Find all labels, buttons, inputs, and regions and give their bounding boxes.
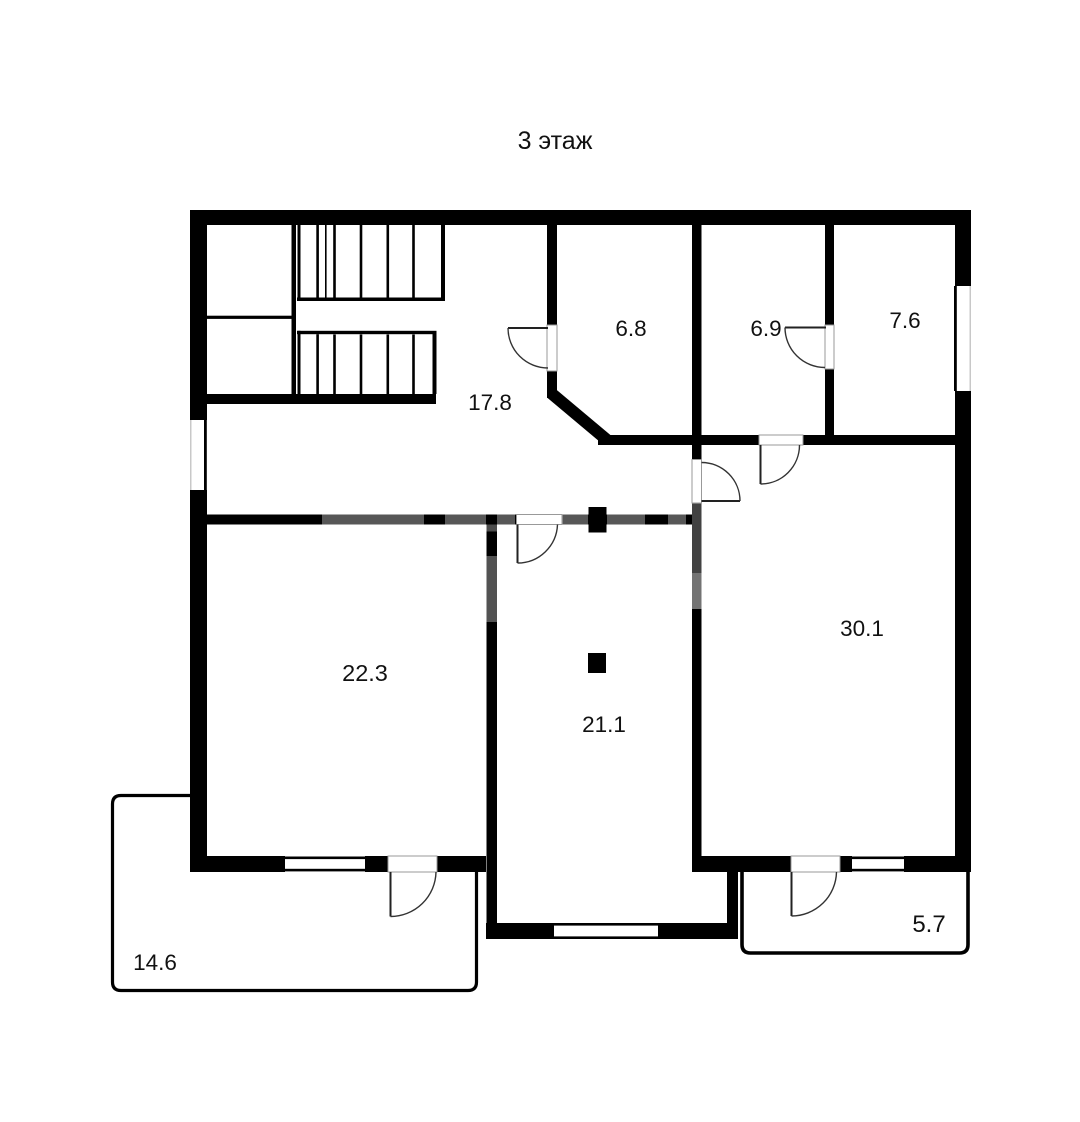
svg-text:22.3: 22.3 bbox=[342, 660, 388, 686]
svg-text:7.6: 7.6 bbox=[889, 308, 920, 333]
svg-text:17.8: 17.8 bbox=[468, 390, 512, 415]
svg-text:3 этаж: 3 этаж bbox=[518, 127, 593, 155]
svg-text:6.9: 6.9 bbox=[750, 316, 781, 341]
svg-text:21.1: 21.1 bbox=[582, 712, 626, 737]
svg-text:5.7: 5.7 bbox=[912, 911, 945, 938]
svg-text:14.6: 14.6 bbox=[133, 950, 177, 975]
svg-text:6.8: 6.8 bbox=[615, 316, 646, 341]
svg-text:30.1: 30.1 bbox=[840, 616, 884, 641]
